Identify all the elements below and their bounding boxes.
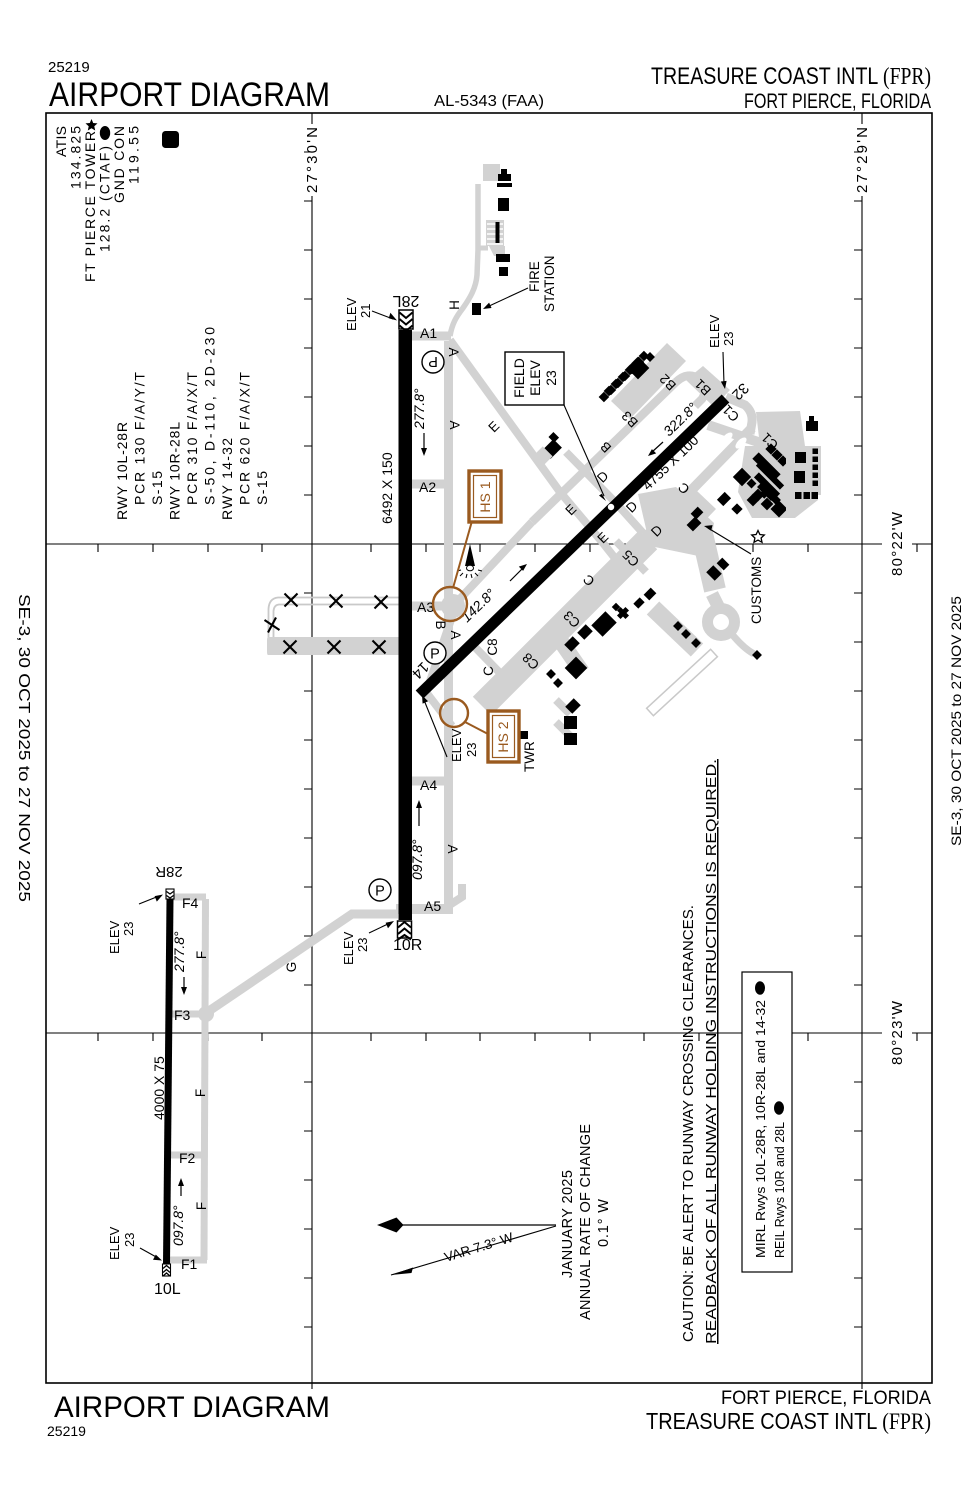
svg-text:6492 X 150: 6492 X 150	[379, 452, 395, 524]
svg-text:10R: 10R	[393, 937, 422, 954]
svg-text:F2: F2	[179, 1150, 196, 1166]
svg-text:L: L	[776, 1104, 783, 1116]
svg-text:23: 23	[721, 332, 736, 346]
svg-text:25219: 25219	[48, 59, 90, 76]
svg-text:A: A	[445, 844, 460, 853]
svg-text:REIL Rwys 10R and 28L: REIL Rwys 10R and 28L	[772, 1122, 787, 1258]
svg-text:AIRPORT DIAGRAM: AIRPORT DIAGRAM	[54, 1391, 330, 1424]
svg-text:P: P	[430, 647, 440, 663]
svg-text:A1: A1	[420, 325, 437, 341]
svg-text:L: L	[757, 984, 764, 996]
svg-text:ANNUAL RATE OF CHANGE: ANNUAL RATE OF CHANGE	[578, 1124, 594, 1320]
svg-text:F4: F4	[182, 895, 199, 911]
svg-text:277.8°: 277.8°	[411, 388, 427, 430]
svg-text:F: F	[193, 1089, 208, 1097]
svg-text:P: P	[428, 353, 438, 369]
svg-text:AL-5343 (FAA): AL-5343 (FAA)	[434, 93, 544, 110]
svg-text:A: A	[446, 347, 461, 356]
svg-text:27°30'N: 27°30'N	[304, 127, 321, 193]
svg-text:FIELD: FIELD	[511, 358, 527, 398]
svg-text:A5: A5	[424, 898, 441, 914]
svg-text:AIRPORT DIAGRAM: AIRPORT DIAGRAM	[49, 76, 330, 114]
svg-text:ELEV: ELEV	[527, 359, 543, 395]
svg-text:277.8°: 277.8°	[171, 931, 187, 973]
svg-text:READBACK OF ALL RUNWAY HOLDING: READBACK OF ALL RUNWAY HOLDING INSTRUCTI…	[703, 759, 720, 1344]
svg-text:H: H	[447, 300, 462, 310]
svg-text:F1: F1	[181, 1256, 198, 1272]
svg-text:ELEV: ELEV	[344, 297, 359, 331]
svg-text:S-50, D-110, 2D-230: S-50, D-110, 2D-230	[202, 327, 218, 505]
svg-text:STATION: STATION	[542, 256, 557, 313]
svg-text:097.8°: 097.8°	[409, 839, 425, 880]
svg-text:28R: 28R	[155, 863, 183, 880]
svg-text:A: A	[447, 420, 462, 429]
svg-text:P: P	[375, 884, 385, 900]
svg-text:23: 23	[355, 938, 370, 952]
svg-text:80°22'W: 80°22'W	[889, 511, 906, 576]
svg-text:HS 2: HS 2	[495, 721, 511, 752]
svg-text:80°23'W: 80°23'W	[889, 1000, 906, 1065]
svg-text:F3: F3	[174, 1007, 191, 1023]
svg-text:B: B	[433, 620, 448, 629]
svg-text:PCR 130 F/A/Y/T: PCR 130 F/A/Y/T	[132, 372, 148, 505]
svg-text:G: G	[284, 962, 299, 973]
svg-text:23: 23	[121, 922, 136, 936]
svg-text:SE-3, 30 OCT 2025 to 27 NOV: SE-3, 30 OCT 2025 to 27 NOV 2025	[15, 594, 32, 902]
svg-text:A4: A4	[420, 777, 437, 793]
svg-text:TREASURE COAST INTL (FPR): TREASURE COAST INTL (FPR)	[651, 63, 931, 90]
svg-text:25219: 25219	[47, 1423, 86, 1439]
svg-text:23: 23	[543, 370, 559, 386]
svg-text:RWY 14-32: RWY 14-32	[219, 438, 235, 520]
svg-text:TREASURE COAST INTL (FPR): TREASURE COAST INTL (FPR)	[646, 1408, 931, 1434]
svg-text:PCR 620 F/A/X/T: PCR 620 F/A/X/T	[237, 372, 253, 505]
svg-text:ELEV: ELEV	[107, 920, 122, 954]
svg-text:F: F	[194, 1202, 209, 1210]
svg-text:CAUTION: BE ALERT TO RUNWAY CR: CAUTION: BE ALERT TO RUNWAY CROSSING CLE…	[680, 905, 697, 1342]
svg-text:28L: 28L	[393, 292, 420, 309]
svg-text:0.1° W: 0.1° W	[596, 1199, 612, 1247]
svg-text:CUSTOMS: CUSTOMS	[749, 557, 764, 624]
svg-text:27°29'N: 27°29'N	[854, 127, 871, 193]
svg-text:TWR: TWR	[522, 741, 537, 772]
svg-text:C: C	[481, 666, 496, 676]
svg-text:10L: 10L	[154, 1281, 181, 1298]
svg-text:FIRE: FIRE	[527, 261, 542, 292]
svg-text:4000 X 75: 4000 X 75	[151, 1056, 167, 1120]
svg-text:JANUARY 2025: JANUARY 2025	[560, 1170, 576, 1278]
svg-text:ELEV: ELEV	[449, 728, 464, 762]
svg-text:HS 1: HS 1	[477, 481, 493, 512]
svg-text:21: 21	[358, 304, 373, 318]
svg-text:A3: A3	[417, 599, 434, 615]
svg-text:D: D	[166, 133, 176, 148]
svg-text:A: A	[448, 630, 463, 639]
svg-text:ELEV: ELEV	[707, 314, 722, 348]
svg-text:RWY 10R-28L: RWY 10R-28L	[167, 422, 183, 520]
svg-text:FORT PIERCE, FLORIDA: FORT PIERCE, FLORIDA	[721, 1388, 931, 1409]
svg-text:PCR 310 F/A/X/T: PCR 310 F/A/X/T	[184, 372, 200, 505]
svg-text:SE-3, 30 OCT 2025 to 27 NOV: SE-3, 30 OCT 2025 to 27 NOV 2025	[948, 596, 964, 846]
svg-text:RWY 10L-28R: RWY 10L-28R	[114, 422, 130, 520]
svg-text:S-15: S-15	[149, 471, 165, 505]
svg-text:MIRL Rwys 10L-28R, 10R-28L and: MIRL Rwys 10L-28R, 10R-28L and 14-32	[753, 1000, 768, 1258]
svg-text:A2: A2	[419, 479, 436, 495]
svg-text:C8: C8	[485, 638, 500, 655]
svg-text:FORT PIERCE, FLORIDA: FORT PIERCE, FLORIDA	[744, 90, 931, 113]
svg-text:23: 23	[122, 1233, 137, 1247]
svg-text:L: L	[102, 129, 109, 141]
svg-text:S-15: S-15	[254, 471, 270, 505]
svg-text:23: 23	[464, 743, 479, 757]
svg-text:F: F	[194, 951, 209, 959]
svg-text:097.8°: 097.8°	[170, 1205, 186, 1246]
svg-text:ELEV: ELEV	[107, 1226, 122, 1260]
svg-text:ELEV: ELEV	[341, 931, 356, 965]
